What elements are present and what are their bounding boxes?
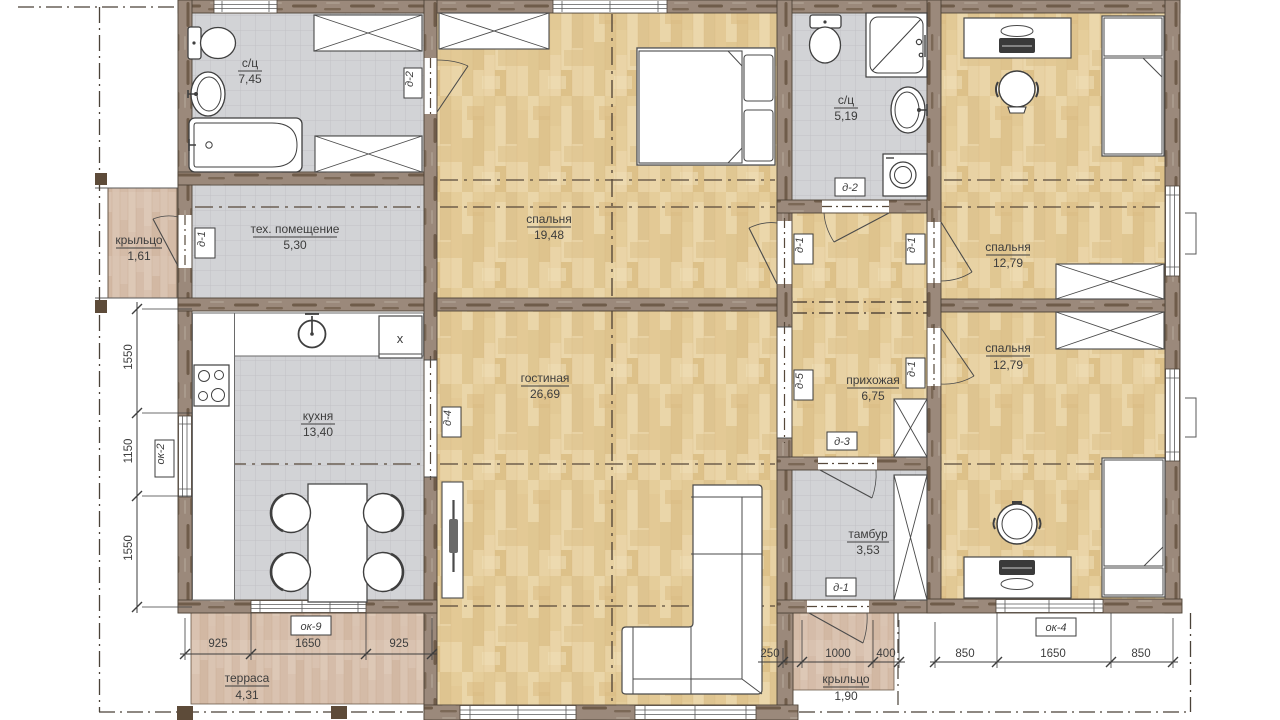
svg-text:тех. помещение: тех. помещение: [251, 222, 340, 236]
svg-text:1650: 1650: [1040, 648, 1066, 660]
svg-text:4,31: 4,31: [235, 688, 259, 702]
svg-text:прихожая: прихожая: [846, 373, 899, 387]
svg-text:д-2: д-2: [842, 182, 858, 194]
svg-text:ок-9: ок-9: [300, 621, 321, 633]
svg-text:спальня: спальня: [985, 341, 1031, 355]
svg-text:крыльцо: крыльцо: [822, 672, 870, 686]
svg-text:850: 850: [955, 648, 974, 660]
svg-text:26,69: 26,69: [530, 387, 560, 401]
svg-text:1,61: 1,61: [127, 249, 151, 263]
svg-text:6,75: 6,75: [861, 389, 885, 403]
svg-text:1650: 1650: [295, 638, 321, 650]
svg-text:д-2: д-2: [404, 71, 416, 87]
svg-text:д-1: д-1: [833, 582, 849, 594]
svg-text:ок-2: ок-2: [155, 443, 167, 464]
svg-text:250: 250: [760, 648, 779, 660]
svg-text:терраса: терраса: [225, 671, 270, 685]
svg-text:5,30: 5,30: [283, 238, 307, 252]
svg-text:с/ц: с/ц: [242, 56, 258, 70]
svg-text:д-4: д-4: [442, 410, 454, 426]
svg-text:д-1: д-1: [906, 361, 918, 377]
svg-text:13,40: 13,40: [303, 425, 333, 439]
svg-text:д-5: д-5: [794, 372, 806, 389]
svg-text:925: 925: [208, 638, 227, 650]
svg-text:1550: 1550: [123, 344, 135, 370]
svg-text:19,48: 19,48: [534, 228, 564, 242]
svg-text:д-3: д-3: [834, 436, 851, 448]
svg-text:крыльцо: крыльцо: [115, 233, 163, 247]
svg-text:850: 850: [1131, 648, 1150, 660]
svg-text:гостиная: гостиная: [521, 371, 570, 385]
svg-text:12,79: 12,79: [993, 358, 1023, 372]
svg-text:1150: 1150: [123, 439, 135, 464]
svg-text:3,53: 3,53: [856, 543, 880, 557]
svg-text:спальня: спальня: [985, 240, 1031, 254]
svg-text:тамбур: тамбур: [848, 527, 888, 541]
svg-text:д-1: д-1: [794, 237, 806, 253]
svg-text:с/ц: с/ц: [838, 93, 854, 107]
svg-text:1000: 1000: [825, 648, 851, 660]
svg-text:кухня: кухня: [303, 409, 334, 423]
svg-text:925: 925: [389, 638, 408, 650]
svg-text:ок-4: ок-4: [1045, 622, 1066, 634]
svg-text:1,90: 1,90: [834, 689, 858, 703]
svg-text:д-1: д-1: [906, 237, 918, 253]
svg-text:12,79: 12,79: [993, 256, 1023, 270]
svg-text:400: 400: [876, 648, 895, 660]
svg-text:x: x: [397, 331, 404, 346]
svg-text:7,45: 7,45: [238, 72, 262, 86]
svg-text:1550: 1550: [123, 535, 135, 561]
svg-text:д-1: д-1: [196, 231, 208, 247]
svg-text:5,19: 5,19: [834, 109, 858, 123]
svg-text:спальня: спальня: [526, 212, 572, 226]
